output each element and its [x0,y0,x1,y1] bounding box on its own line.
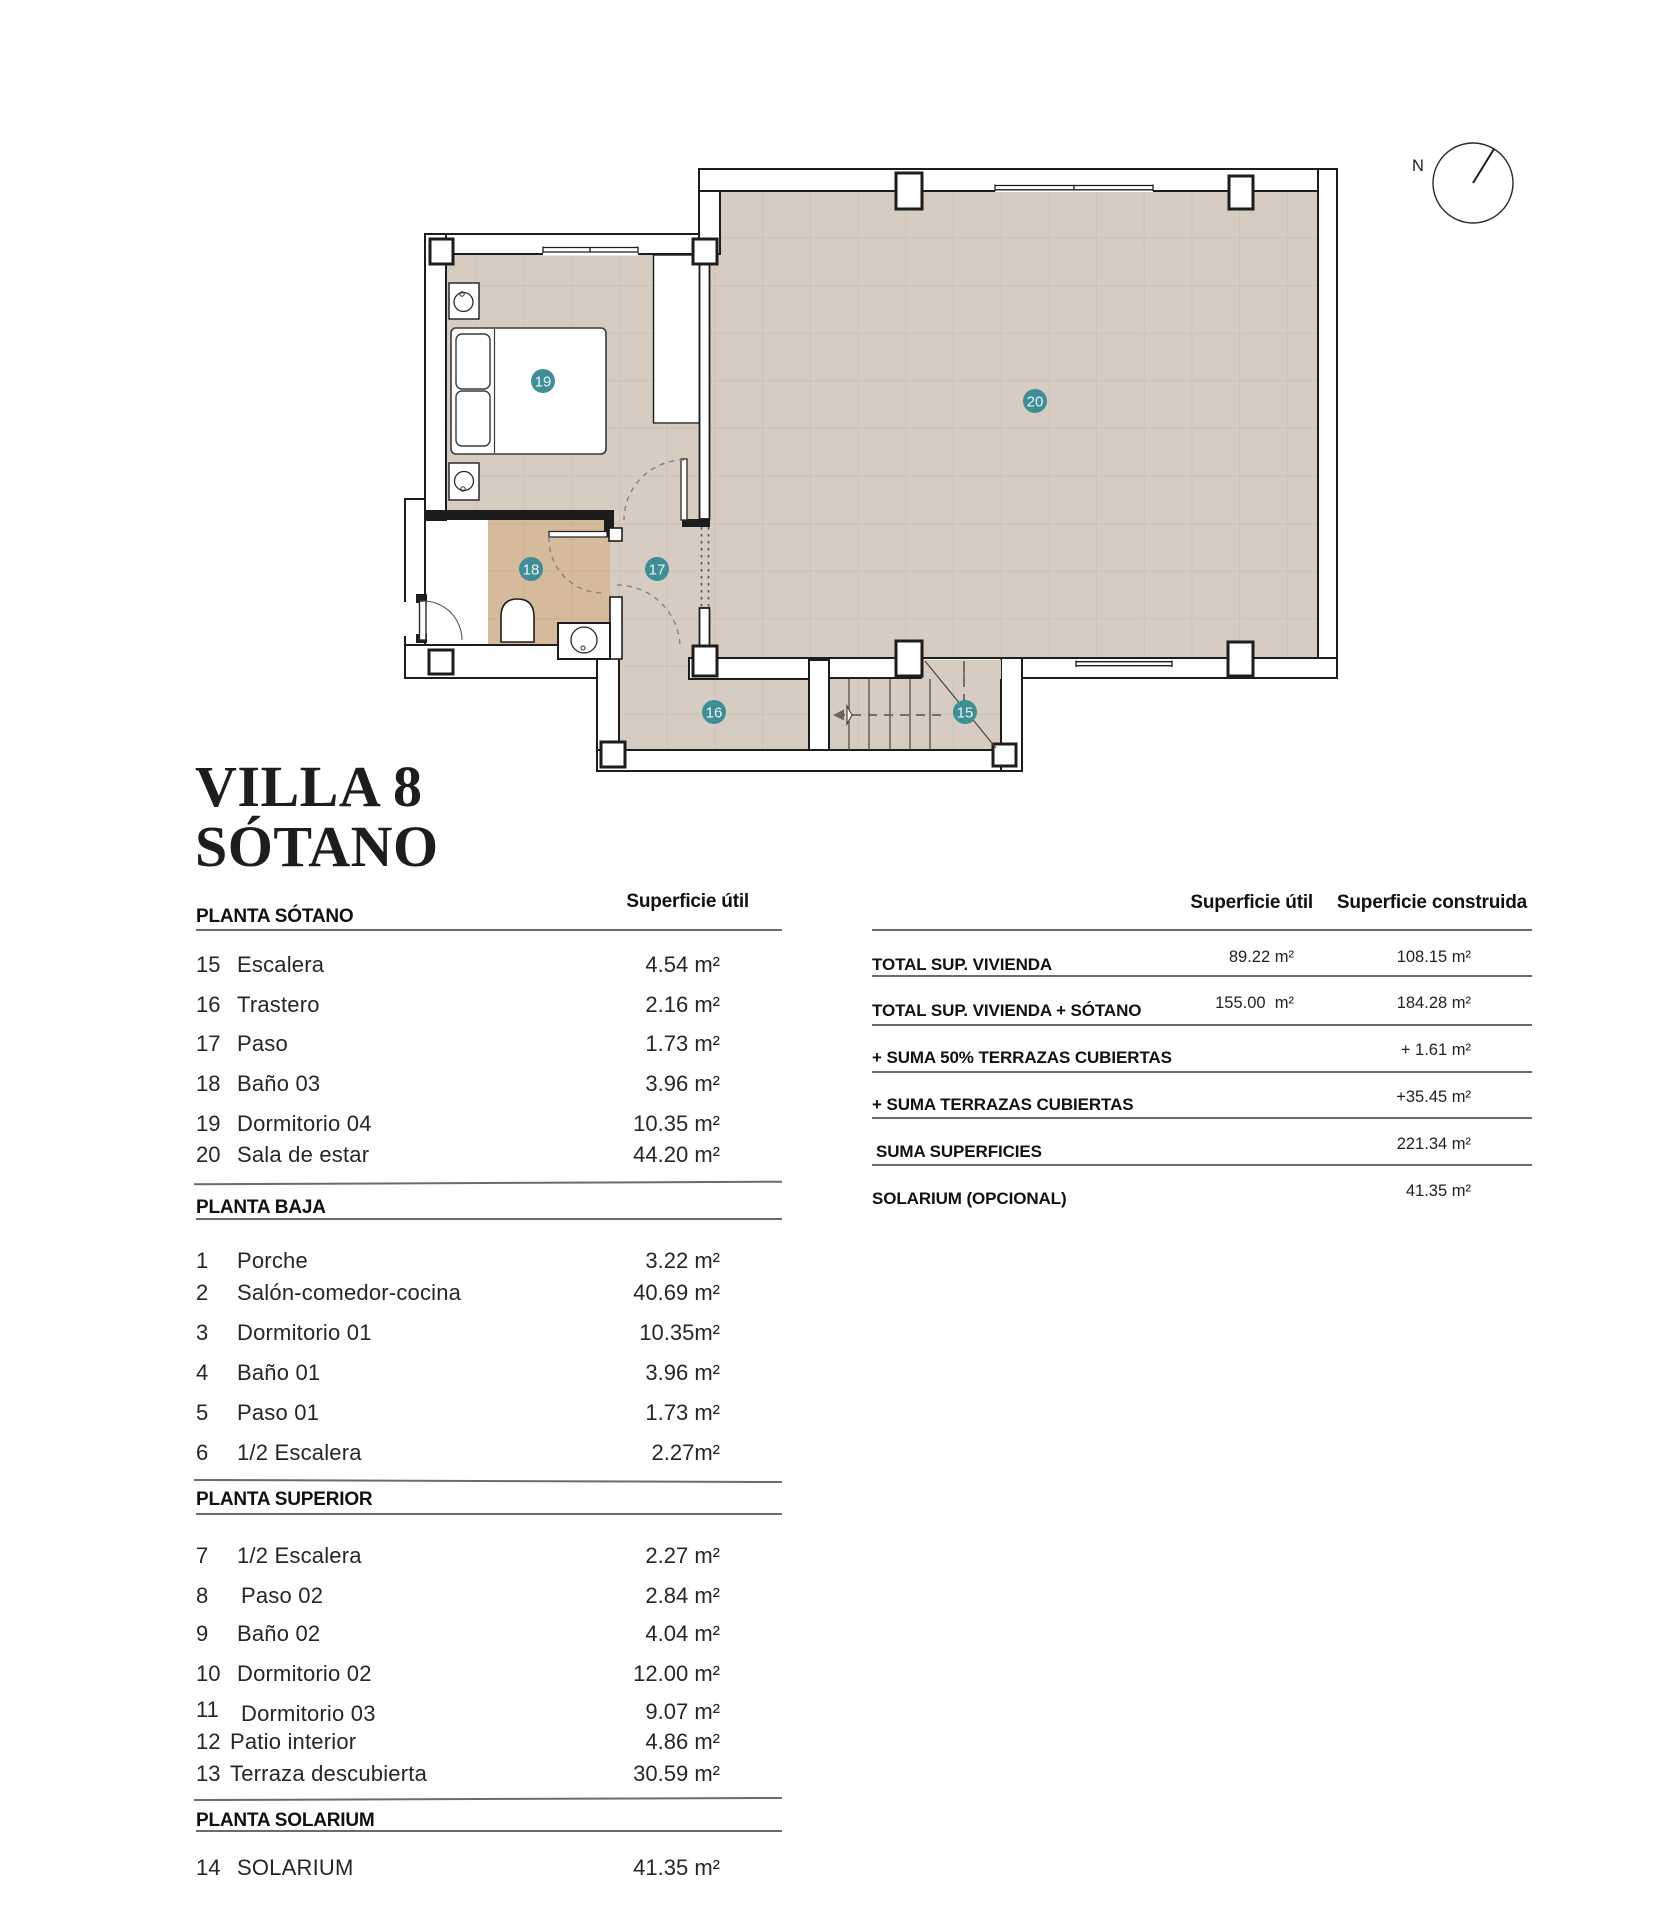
svg-text:19: 19 [535,374,552,391]
svg-text:15: 15 [957,705,974,722]
svg-text:18: 18 [523,562,540,579]
svg-text:20: 20 [1027,394,1044,411]
svg-text:N: N [1412,157,1424,175]
svg-text:17: 17 [649,562,666,579]
svg-text:16: 16 [706,705,723,722]
